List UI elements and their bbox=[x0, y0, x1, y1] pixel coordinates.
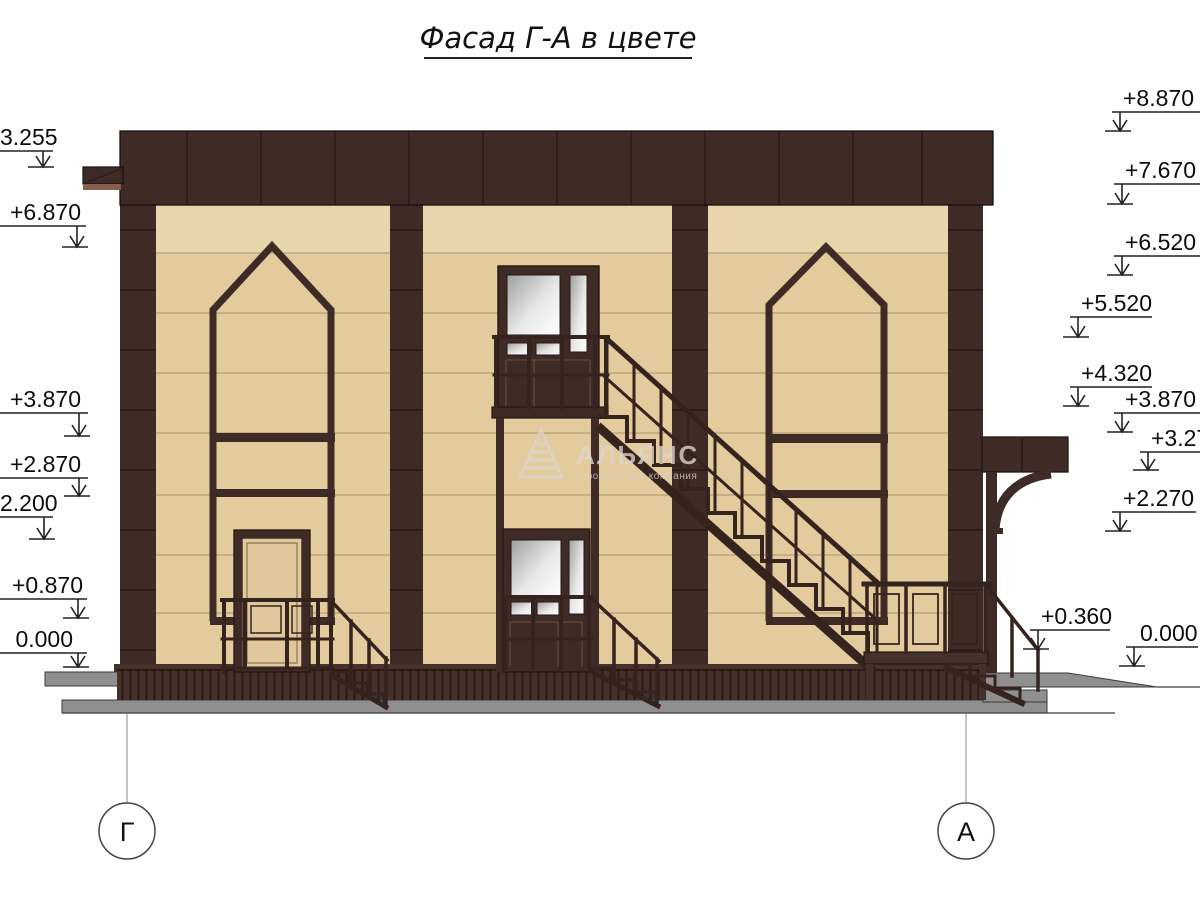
wall-top-band bbox=[120, 205, 983, 253]
roof-band bbox=[83, 131, 993, 205]
axis-bubble-a: А bbox=[938, 713, 994, 859]
ground-door-glass-main bbox=[511, 540, 561, 597]
svg-text:+7.670: +7.670 bbox=[1125, 157, 1196, 183]
door-leaf bbox=[242, 538, 302, 668]
elevation-marker: 0.000 bbox=[1119, 620, 1198, 666]
elevation-marker: +0.360 bbox=[1023, 603, 1112, 649]
elevation-marker: +0.870 bbox=[0, 572, 89, 618]
svg-text:+6.520: +6.520 bbox=[1125, 229, 1196, 255]
svg-text:0.000: 0.000 bbox=[1140, 620, 1198, 646]
svg-text:0.000: 0.000 bbox=[15, 626, 73, 652]
watermark-brand: АЛЬЯНС bbox=[576, 440, 699, 470]
lower-landing-slab bbox=[864, 652, 988, 664]
elevation-markers-right: +8.870 +7.670 +6.520 +5.520 +4.320 +3.87… bbox=[1023, 85, 1200, 666]
svg-text:+8.870: +8.870 bbox=[1123, 85, 1194, 111]
facade-elevation-svg: Фасад Г-А в цвете bbox=[0, 0, 1200, 900]
svg-text:+0.870: +0.870 bbox=[12, 572, 83, 598]
elevation-marker: +8.870 bbox=[1105, 85, 1200, 131]
svg-text:+3.27: +3.27 bbox=[1151, 425, 1200, 451]
svg-text:+4.320: +4.320 bbox=[1081, 360, 1152, 386]
ground-sidewalk bbox=[62, 700, 1047, 713]
page-title: Фасад Г-А в цвете bbox=[419, 21, 696, 55]
upper-door-glass-main bbox=[507, 275, 560, 335]
canopy-post bbox=[986, 472, 997, 673]
facade-drawing-page: Фасад Г-А в цвете bbox=[0, 0, 1200, 900]
right-ramp bbox=[983, 673, 1157, 687]
ground-door bbox=[503, 529, 590, 672]
drawing-title: Фасад Г-А в цвете bbox=[419, 21, 696, 58]
svg-text:+2.870: +2.870 bbox=[10, 451, 81, 477]
svg-text:+3.870: +3.870 bbox=[10, 386, 81, 412]
svg-text:+2.270: +2.270 bbox=[1123, 485, 1194, 511]
elevation-marker: +2.270 bbox=[1105, 485, 1196, 531]
canopy-bracket-arc bbox=[995, 474, 1051, 530]
elevation-marker: +7.670 bbox=[1107, 157, 1200, 204]
svg-text:3.255: 3.255 bbox=[0, 124, 58, 150]
elevation-marker: +3.27 bbox=[1133, 425, 1200, 470]
elevation-marker: 0.000 bbox=[0, 626, 89, 667]
left-approach-slab bbox=[45, 672, 123, 686]
upper-door-glass-side bbox=[570, 275, 587, 352]
axis-label-g: Г bbox=[120, 817, 135, 847]
plinth-slats bbox=[117, 670, 983, 700]
elevation-markers-left: 3.255 +6.870 +3.870 +2.870 2.200 +0.870 … bbox=[0, 124, 90, 667]
axis-bubble-g: Г bbox=[99, 713, 155, 859]
svg-text:+0.360: +0.360 bbox=[1041, 603, 1112, 629]
elevation-marker: 3.255 bbox=[0, 124, 58, 167]
entrance-canopy bbox=[982, 437, 1068, 673]
watermark-tagline: строительная компания bbox=[576, 471, 697, 482]
canopy-bracket-foot bbox=[990, 528, 1003, 534]
elevation-marker: +6.520 bbox=[1107, 229, 1200, 275]
svg-text:+3.870: +3.870 bbox=[1125, 386, 1196, 412]
elevation-marker: +5.520 bbox=[1063, 290, 1152, 337]
svg-text:+5.520: +5.520 bbox=[1081, 290, 1152, 316]
svg-text:+6.870: +6.870 bbox=[10, 199, 81, 225]
canopy-slab bbox=[982, 437, 1068, 472]
landing-slab bbox=[492, 407, 608, 418]
elevation-marker: +6.870 bbox=[0, 199, 88, 247]
elevation-marker: 2.200 bbox=[0, 490, 58, 539]
elevation-marker: +3.870 bbox=[0, 386, 90, 436]
left-ledge-trim bbox=[83, 184, 121, 190]
ground-door-glass-side bbox=[569, 540, 584, 614]
axis-label-a: А bbox=[957, 817, 975, 847]
svg-text:2.200: 2.200 bbox=[0, 490, 58, 516]
